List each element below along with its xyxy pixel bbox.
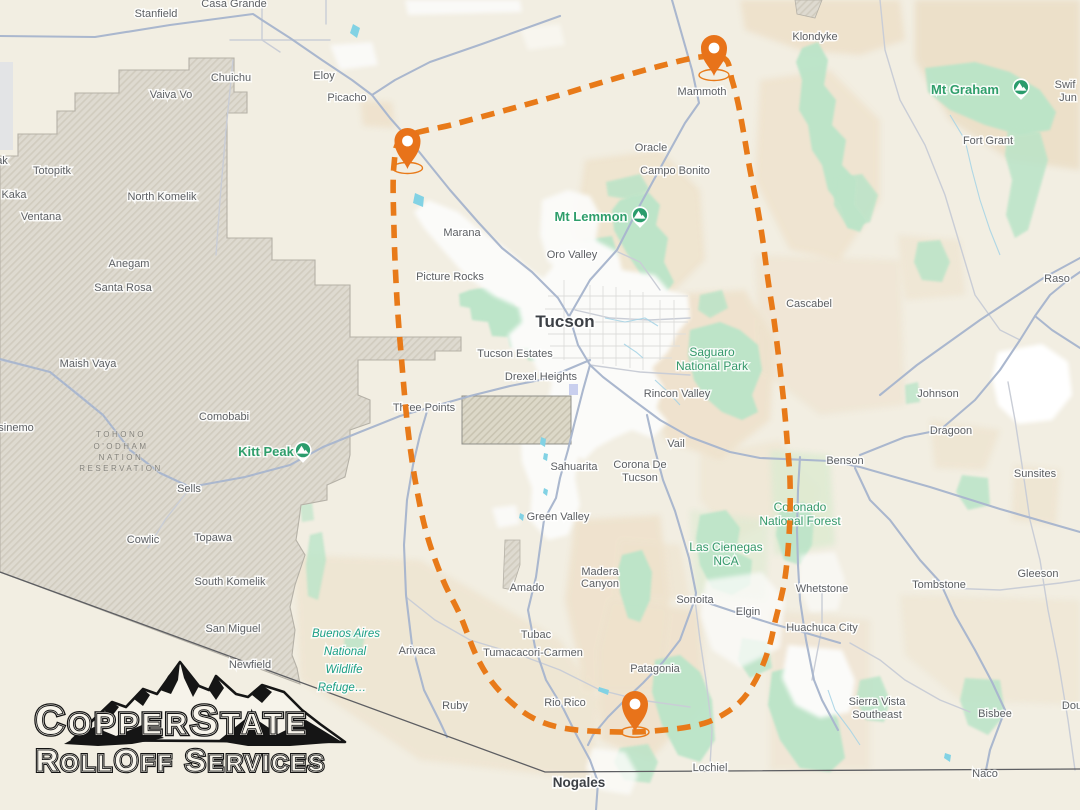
- svg-text:Rincon Valley: Rincon Valley: [644, 388, 711, 400]
- svg-text:Swif: Swif: [1055, 79, 1077, 91]
- svg-text:Wildlife: Wildlife: [326, 664, 363, 676]
- svg-text:South Komelik: South Komelik: [195, 576, 266, 588]
- svg-text:Dou: Dou: [1062, 700, 1080, 712]
- svg-text:Tucson Estates: Tucson Estates: [477, 348, 553, 360]
- svg-text:ak: ak: [0, 155, 8, 167]
- svg-text:Sierra Vista: Sierra Vista: [849, 696, 907, 708]
- svg-text:Tombstone: Tombstone: [912, 579, 966, 591]
- svg-text:Lochiel: Lochiel: [693, 762, 728, 774]
- svg-text:Oracle: Oracle: [635, 142, 667, 154]
- svg-text:Southeast: Southeast: [852, 709, 902, 721]
- svg-text:Coronado: Coronado: [774, 500, 827, 514]
- svg-text:Corona De: Corona De: [613, 459, 666, 471]
- svg-text:Rio Rico: Rio Rico: [544, 697, 586, 709]
- svg-text:Marana: Marana: [443, 227, 481, 239]
- svg-text:Sahuarita: Sahuarita: [550, 461, 598, 473]
- svg-text:Refuge…: Refuge…: [318, 682, 367, 694]
- svg-text:Vaiva Vo: Vaiva Vo: [150, 89, 193, 101]
- svg-text:National: National: [324, 646, 367, 658]
- svg-text:Campo Bonito: Campo Bonito: [640, 165, 710, 177]
- svg-text:RESERVATION: RESERVATION: [79, 464, 163, 473]
- svg-text:Bisbee: Bisbee: [978, 708, 1012, 720]
- svg-text:Cascabel: Cascabel: [786, 298, 832, 310]
- svg-text:Fort Grant: Fort Grant: [963, 135, 1013, 147]
- svg-text:Mammoth: Mammoth: [678, 86, 727, 98]
- svg-text:NATION: NATION: [99, 453, 144, 462]
- svg-text:Johnson: Johnson: [917, 388, 959, 400]
- svg-text:Benson: Benson: [826, 455, 863, 467]
- svg-text:Mt Graham: Mt Graham: [931, 82, 999, 97]
- svg-text:Patagonia: Patagonia: [630, 663, 680, 675]
- svg-text:Amado: Amado: [510, 582, 545, 594]
- svg-text:Vail: Vail: [667, 438, 685, 450]
- svg-text:Tumacacori-Carmen: Tumacacori-Carmen: [483, 647, 583, 659]
- svg-text:Tucson: Tucson: [535, 312, 594, 331]
- svg-text:Casa Grande: Casa Grande: [201, 0, 266, 10]
- svg-text:Kaka: Kaka: [1, 189, 27, 201]
- svg-text:Tucson: Tucson: [622, 472, 658, 484]
- svg-text:Stanfield: Stanfield: [135, 8, 178, 20]
- svg-text:sinemo: sinemo: [0, 422, 34, 434]
- svg-text:Eloy: Eloy: [313, 70, 335, 82]
- svg-text:Totopitk: Totopitk: [33, 165, 71, 177]
- svg-text:San Miguel: San Miguel: [205, 623, 260, 635]
- svg-text:National Park: National Park: [676, 359, 749, 373]
- svg-text:Klondyke: Klondyke: [792, 31, 837, 43]
- svg-text:Oro Valley: Oro Valley: [547, 249, 598, 261]
- svg-text:Three Points: Three Points: [393, 402, 456, 414]
- svg-text:Green Valley: Green Valley: [527, 511, 590, 523]
- svg-text:Canyon: Canyon: [581, 578, 619, 590]
- svg-text:Kitt Peak: Kitt Peak: [238, 444, 294, 459]
- svg-text:Chuichu: Chuichu: [211, 72, 251, 84]
- svg-text:Naco: Naco: [972, 768, 998, 780]
- svg-text:Picacho: Picacho: [327, 92, 366, 104]
- svg-text:Anegam: Anegam: [109, 258, 150, 270]
- svg-text:Ruby: Ruby: [442, 700, 468, 712]
- svg-text:Sunsites: Sunsites: [1014, 468, 1057, 480]
- svg-text:Arivaca: Arivaca: [399, 645, 437, 657]
- svg-text:Topawa: Topawa: [194, 532, 233, 544]
- svg-text:Sells: Sells: [177, 483, 201, 495]
- svg-text:NCA: NCA: [713, 554, 738, 568]
- svg-text:Mt Lemmon: Mt Lemmon: [555, 209, 628, 224]
- svg-text:O'ODHAM: O'ODHAM: [93, 442, 148, 451]
- svg-text:Drexel Heights: Drexel Heights: [505, 371, 578, 383]
- svg-text:Raso: Raso: [1044, 273, 1070, 285]
- svg-text:Dragoon: Dragoon: [930, 425, 972, 437]
- svg-text:Newfield: Newfield: [229, 659, 271, 671]
- svg-text:Cowlic: Cowlic: [127, 534, 160, 546]
- svg-text:National Forest: National Forest: [759, 514, 841, 528]
- svg-text:Buenos Aires: Buenos Aires: [312, 628, 380, 640]
- svg-text:Tubac: Tubac: [521, 629, 552, 641]
- svg-text:Whetstone: Whetstone: [796, 583, 849, 595]
- svg-text:Gleeson: Gleeson: [1018, 568, 1059, 580]
- svg-text:Nogales: Nogales: [553, 775, 606, 790]
- svg-text:TOHONO: TOHONO: [96, 430, 146, 439]
- svg-text:Maish Vaya: Maish Vaya: [60, 358, 118, 370]
- svg-text:Elgin: Elgin: [736, 606, 760, 618]
- svg-text:Ventana: Ventana: [21, 211, 62, 223]
- svg-text:Picture Rocks: Picture Rocks: [416, 271, 484, 283]
- svg-text:Las Cienegas: Las Cienegas: [689, 540, 762, 554]
- svg-text:Huachuca City: Huachuca City: [786, 622, 858, 634]
- svg-text:North Komelik: North Komelik: [127, 191, 197, 203]
- svg-text:Santa Rosa: Santa Rosa: [94, 282, 152, 294]
- svg-text:Sonoita: Sonoita: [676, 594, 714, 606]
- svg-text:Jun: Jun: [1059, 92, 1077, 104]
- svg-text:Saguaro: Saguaro: [689, 345, 735, 359]
- svg-text:Comobabi: Comobabi: [199, 411, 249, 423]
- svg-text:Madera: Madera: [581, 566, 619, 578]
